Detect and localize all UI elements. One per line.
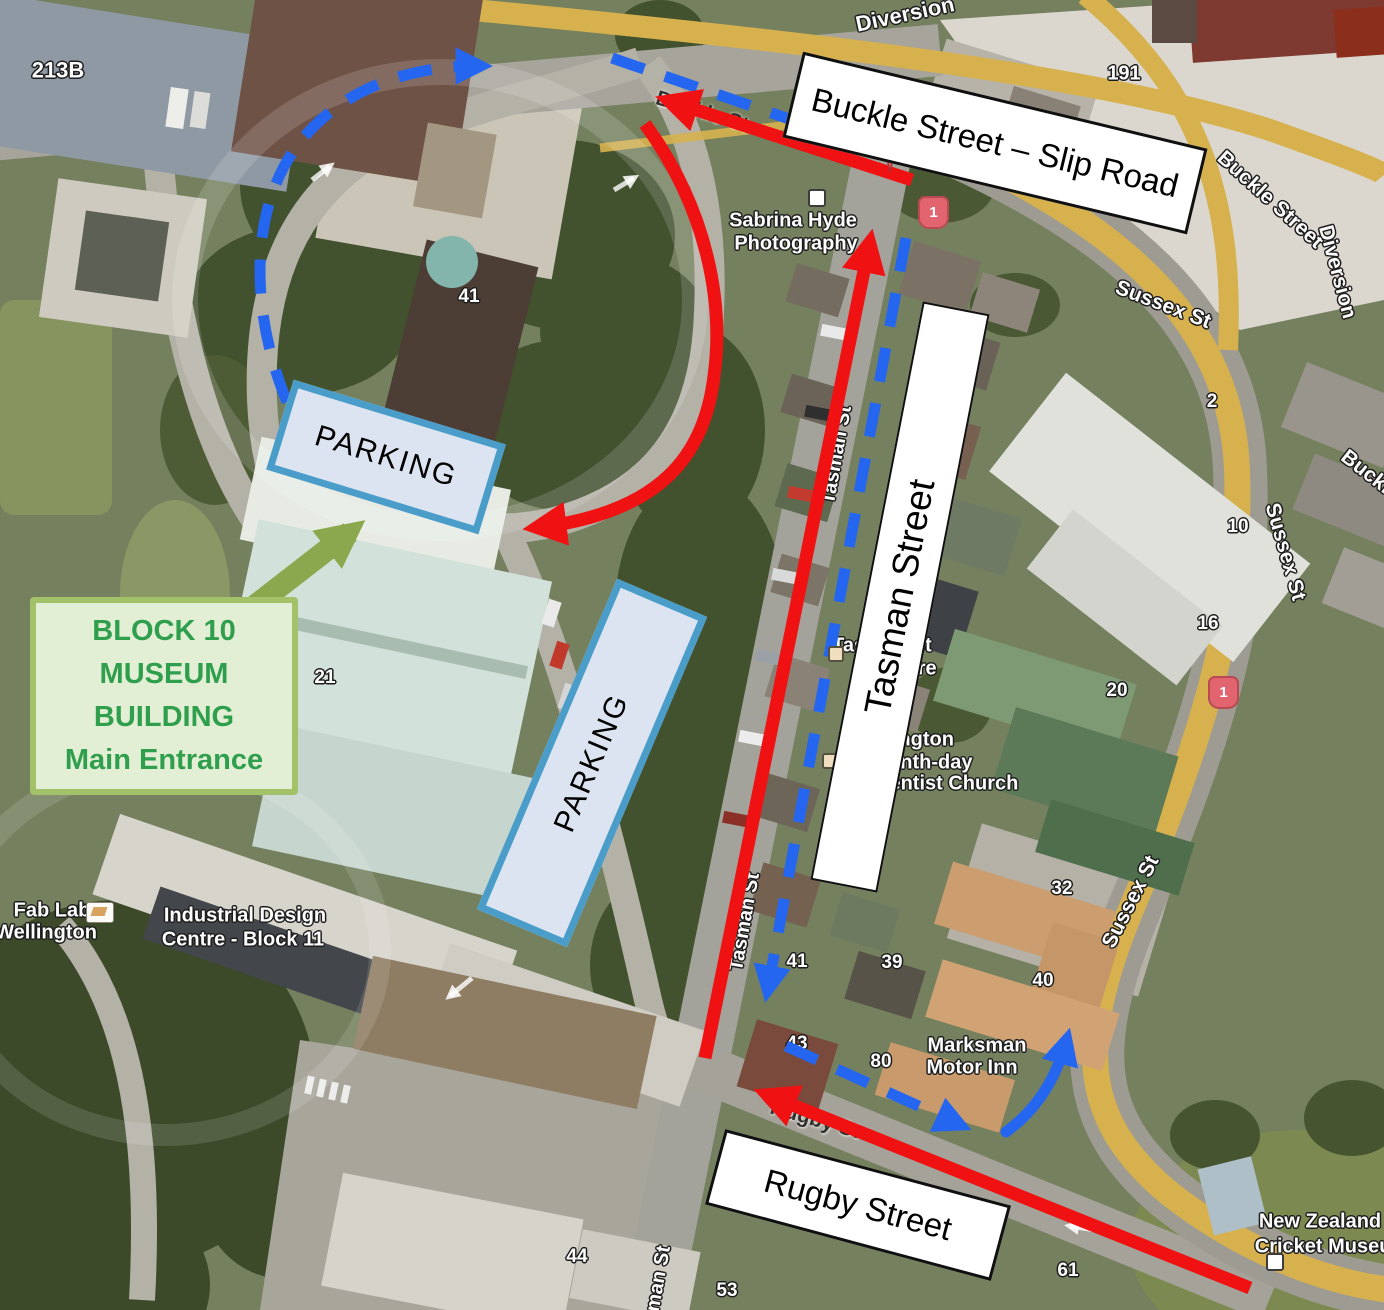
label-fab-lab-1: Fab Lab bbox=[14, 901, 91, 922]
shield-number: 1 bbox=[929, 204, 937, 221]
block10-line1: BLOCK 10 bbox=[92, 610, 235, 653]
parking-callout-north: PARKING bbox=[266, 380, 506, 535]
blue-route-campus-loop bbox=[260, 66, 478, 402]
label-10: 10 bbox=[1227, 517, 1248, 537]
label-53: 53 bbox=[716, 1281, 737, 1301]
label-idc-2: Centre - Block 11 bbox=[162, 930, 324, 951]
buckle-slip-road-text: Buckle Street – Slip Road bbox=[808, 81, 1183, 206]
sabrina-poi-marker bbox=[808, 189, 826, 207]
road-arrow-icon bbox=[450, 978, 472, 996]
label-sabrina-1: Sabrina Hyde bbox=[729, 211, 857, 232]
label-rugby-st-road: Rugby St bbox=[767, 1096, 862, 1144]
label-80: 80 bbox=[870, 1052, 891, 1072]
label-39: 39 bbox=[881, 953, 902, 973]
block10-museum-callout: BLOCK 10 MUSEUM BUILDING Main Entrance bbox=[30, 597, 298, 795]
label-marksman-1: Marksman bbox=[928, 1036, 1027, 1057]
label-sabrina-2: Photography bbox=[734, 234, 857, 255]
label-idc-1: Industrial Design bbox=[164, 906, 326, 927]
label-buckle-st-right: Buckle St bbox=[1337, 446, 1384, 522]
label-marksman-2: Motor Inn bbox=[926, 1058, 1017, 1079]
label-32: 32 bbox=[1051, 879, 1072, 899]
label-2: 2 bbox=[1207, 392, 1218, 412]
label-tasman-st-1: Tasman St bbox=[818, 404, 856, 506]
tasman-street-callout: Tasman Street bbox=[810, 301, 989, 892]
fab-lab-icon bbox=[86, 902, 114, 923]
rugby-street-text: Rugby Street bbox=[760, 1162, 956, 1249]
label-buckle-diversion-1: Buckle Street bbox=[1213, 147, 1328, 253]
cricket-museum-poi-marker bbox=[1266, 1253, 1284, 1271]
tasman-street-text: Tasman Street bbox=[857, 476, 944, 718]
label-16: 16 bbox=[1197, 614, 1218, 634]
label-20: 20 bbox=[1106, 681, 1127, 701]
highway-1-shield-icon: 1 bbox=[1208, 676, 1239, 709]
shield-number: 1 bbox=[1219, 684, 1227, 701]
rugby-street-callout: Rugby Street bbox=[705, 1129, 1011, 1281]
label-buckle-diversion-2: Diversion bbox=[1314, 223, 1360, 321]
label-tasman-st-2: Tasman St bbox=[726, 871, 764, 973]
label-61: 61 bbox=[1057, 1261, 1078, 1281]
label-21: 21 bbox=[314, 668, 335, 688]
label-cricket-1: New Zealand bbox=[1259, 1212, 1381, 1233]
block10-line4: Main Entrance bbox=[65, 739, 263, 782]
zebra-crossing bbox=[304, 1076, 351, 1104]
label-43: 43 bbox=[786, 1034, 807, 1054]
buckle-slip-road-callout: Buckle Street – Slip Road bbox=[782, 52, 1207, 235]
label-tasman-st-3: Tasman St bbox=[637, 1244, 675, 1310]
label-diversion-top: Diversion bbox=[854, 0, 957, 36]
label-191: 191 bbox=[1107, 64, 1140, 85]
label-sussex-st-1: Sussex St bbox=[1112, 277, 1214, 334]
parking-callout-south: PARKING bbox=[477, 579, 707, 948]
block10-line2: MUSEUM bbox=[100, 653, 229, 696]
highway-1-shield-icon: 1 bbox=[918, 196, 949, 229]
road-arrow-icon bbox=[614, 178, 634, 190]
label-44: 44 bbox=[566, 1247, 587, 1267]
road-arrow-icon bbox=[1070, 1226, 1096, 1230]
label-sussex-st-3: Sussex St bbox=[1098, 852, 1163, 951]
annotated-aerial-map: 213B Diversion 191 Buckle Street Diversi… bbox=[0, 0, 1384, 1310]
red-route-campus-curve bbox=[540, 124, 717, 527]
label-41: 41 bbox=[786, 952, 807, 972]
poi-marker bbox=[828, 646, 844, 662]
label-41-tower: 41 bbox=[458, 287, 479, 307]
label-213b: 213B bbox=[32, 58, 85, 81]
label-fab-lab-2: Wellington bbox=[0, 923, 97, 944]
block10-line3: BUILDING bbox=[94, 696, 234, 739]
parking-text: PARKING bbox=[311, 419, 461, 494]
parking-text: PARKING bbox=[548, 689, 637, 837]
road-arrow-icon bbox=[312, 166, 330, 180]
label-40: 40 bbox=[1032, 971, 1053, 991]
label-buckle-st-road: Buckle St bbox=[653, 87, 752, 138]
label-sussex-st-2: Sussex St bbox=[1261, 501, 1310, 604]
